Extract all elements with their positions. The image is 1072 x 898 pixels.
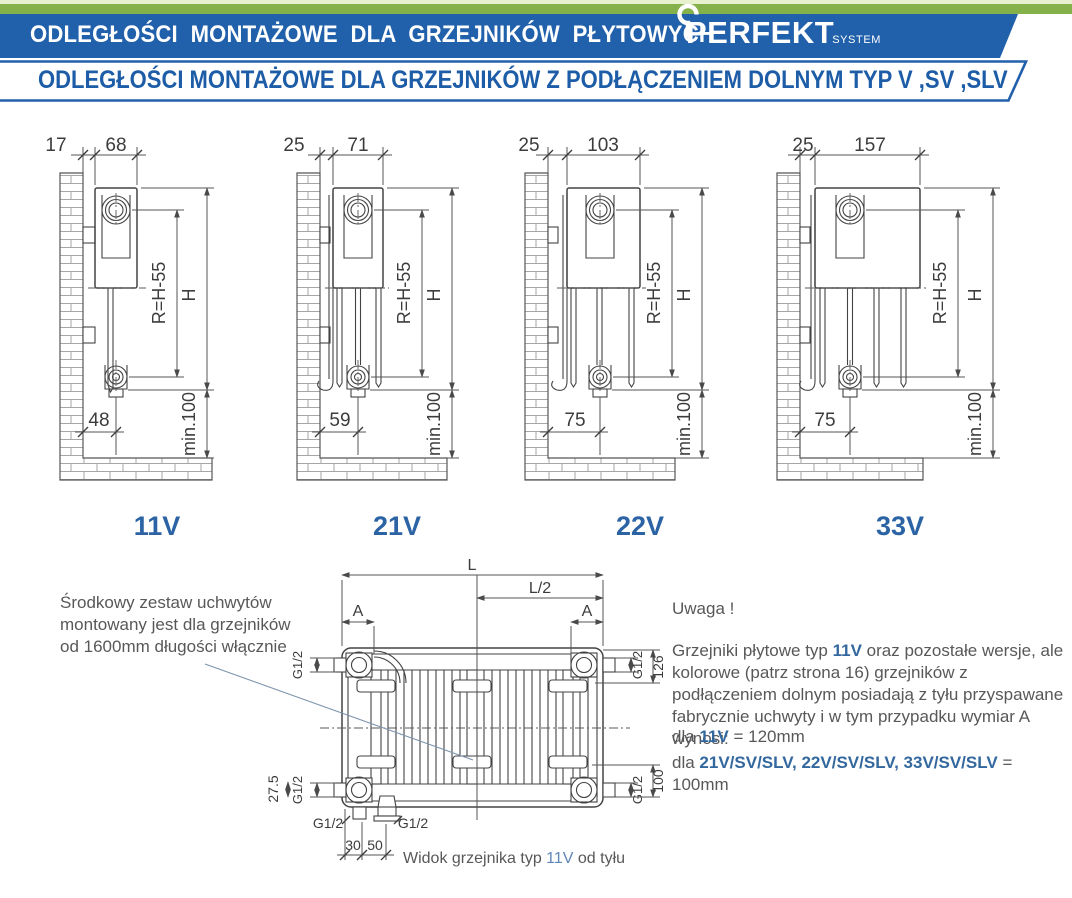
green-strip <box>0 4 1072 14</box>
dim-h-label: H <box>179 289 199 302</box>
dim-27-5-label: 27.5 <box>265 775 281 802</box>
dim-min-22v: min.100 <box>674 390 709 458</box>
dim-min-label: min.100 <box>179 392 199 456</box>
brand-swoosh-icon <box>682 10 704 38</box>
dim-bottom-33v: 75 <box>792 397 858 455</box>
dim-depth-label: 68 <box>105 135 126 156</box>
dim-L-label: L <box>468 557 477 574</box>
dim-gap-label: 17 <box>45 135 66 156</box>
dim-g12-bottom-right: G1/2 <box>615 776 645 804</box>
brand-logo: PERFEKT SYSTEM <box>686 17 881 48</box>
dim-L2: L/2 <box>477 580 603 598</box>
dim-A-left: A <box>342 603 374 654</box>
rule-text: dla <box>672 753 699 772</box>
dim-depth-label: 157 <box>854 135 886 156</box>
dim-g12-top-right: G1/2 <box>615 651 645 679</box>
dim-bottom-label: 59 <box>329 410 350 431</box>
dim-h-label: H <box>965 289 985 302</box>
dim-30-label: 30 <box>345 837 361 853</box>
dim-g12-bottom-stubs: G1/2 G1/2 <box>313 815 429 831</box>
dim-h-label: H <box>674 289 694 302</box>
dim-bottom-22v: 75 <box>540 397 608 455</box>
brand-text: PERFEKT <box>686 17 834 48</box>
page-subtitle: ODLEGŁOŚCI MONTAŻOWE DLA GRZEJNIKÓW Z PO… <box>38 66 1008 95</box>
dim-min-21v: min.100 <box>424 390 459 458</box>
dim-bottom-label: 75 <box>564 410 585 431</box>
dim-min-11v: min.100 <box>179 390 214 458</box>
dimension-rule-11v: dla 11V = 120mm <box>672 726 805 748</box>
dim-min-label: min.100 <box>424 392 444 456</box>
radiator-side-11v <box>88 188 146 397</box>
radiator-side-33v <box>800 188 926 397</box>
type-label-33v: 33V <box>876 511 924 541</box>
type-label-11v: 11V <box>134 511 181 541</box>
dim-A-label: A <box>582 603 593 620</box>
dim-27-5: 27.5 <box>265 775 288 802</box>
left-note-line: montowany jest dla grzejników <box>60 614 320 636</box>
page: ODLEGŁOŚCI MONTAŻOWE DLA GRZEJNIKÓW PŁYT… <box>0 0 1072 898</box>
dim-r-33v: R=H-55 <box>863 210 965 377</box>
dim-g12-label: G1/2 <box>313 815 344 831</box>
caption-type: 11V <box>546 850 574 867</box>
dim-L2-label: L/2 <box>529 580 551 597</box>
dim-depth-label: 103 <box>587 135 619 156</box>
type-label-22v: 22V <box>616 511 664 541</box>
type-ref-11v: 11V <box>699 727 728 746</box>
side-view-21v: 25 71 H R=H-55 min.100 59 21V <box>263 135 498 545</box>
left-note-line: od 1600mm długości włącznie <box>60 636 320 658</box>
radiator-side-22v <box>552 188 646 397</box>
dim-g12-label: G1/2 <box>630 776 645 804</box>
note-leader-line <box>205 664 473 760</box>
dim-depth-label: 71 <box>347 135 368 156</box>
type-ref-list: 21V/SV/SLV, 22V/SV/SLV, 33V/SV/SLV <box>699 753 997 772</box>
type-label-21v: 21V <box>373 511 421 541</box>
warning-title: Uwaga ! <box>672 598 734 620</box>
left-note: Środkowy zestaw uchwytów montowany jest … <box>60 592 320 658</box>
dim-126-label: 126 <box>650 655 666 679</box>
dim-bottom-label: 75 <box>814 410 835 431</box>
side-view-22v: 25 103 H R=H-55 min.100 75 22V <box>491 135 741 545</box>
back-view-caption: Widok grzejnika typ 11V od tyłu <box>403 850 625 867</box>
dim-r-22v: R=H-55 <box>613 210 679 377</box>
caption-suffix: od tyłu <box>573 850 625 867</box>
mounting-brackets <box>357 670 587 784</box>
dim-bottom-label: 48 <box>88 410 109 431</box>
dim-L: L <box>342 557 603 646</box>
dim-50-label: 50 <box>367 837 383 853</box>
brand-subtext: SYSTEM <box>832 34 881 46</box>
dim-r-label: R=H-55 <box>644 262 664 325</box>
dim-g12-label: G1/2 <box>398 815 429 831</box>
dim-gap-label: 25 <box>792 135 813 156</box>
dim-A-label: A <box>353 603 364 620</box>
paragraph-text: Grzejniki płytowe typ <box>672 641 833 660</box>
dim-100-label: 100 <box>650 769 666 793</box>
dim-A-right: A <box>571 603 603 654</box>
header-banner <box>0 0 1072 112</box>
dim-r-21v: R=H-55 <box>371 210 429 377</box>
left-note-line: Środkowy zestaw uchwytów <box>60 592 320 614</box>
dim-r-label: R=H-55 <box>394 262 414 325</box>
dim-g12-label: G1/2 <box>630 651 645 679</box>
radiator-side-21v <box>318 188 389 397</box>
rule-text: dla <box>672 727 699 746</box>
side-view-33v: 25 157 H R=H-55 min.100 75 33V <box>743 135 1043 545</box>
dim-h-label: H <box>424 289 444 302</box>
caption-prefix: Widok grzejnika typ <box>403 850 546 867</box>
dim-gap-label: 25 <box>518 135 539 156</box>
type-ref-11v: 11V <box>833 641 862 660</box>
dim-gap-label: 25 <box>283 135 304 156</box>
page-title: ODLEGŁOŚCI MONTAŻOWE DLA GRZEJNIKÓW PŁYT… <box>30 21 715 49</box>
dim-h-11v: H <box>128 188 214 390</box>
green-strip-pale <box>0 0 1072 4</box>
side-view-11v: 17 68 H R=H-55 min.100 48 11V <box>26 135 261 545</box>
rule-text: = 120mm <box>729 727 805 746</box>
dim-r-label: R=H-55 <box>930 262 950 325</box>
dim-min-33v: min.100 <box>923 390 1000 458</box>
dim-g12-label: G1/2 <box>290 776 305 804</box>
dimension-rule-others: dla 21V/SV/SLV, 22V/SV/SLV, 33V/SV/SLV =… <box>672 752 1072 796</box>
dim-g12-bottom-left: G1/2 <box>290 776 336 804</box>
dim-r-label: R=H-55 <box>149 262 169 325</box>
dim-top-33v: 25 157 <box>788 135 929 185</box>
dim-min-label: min.100 <box>674 392 694 456</box>
dim-min-label: min.100 <box>965 392 985 456</box>
